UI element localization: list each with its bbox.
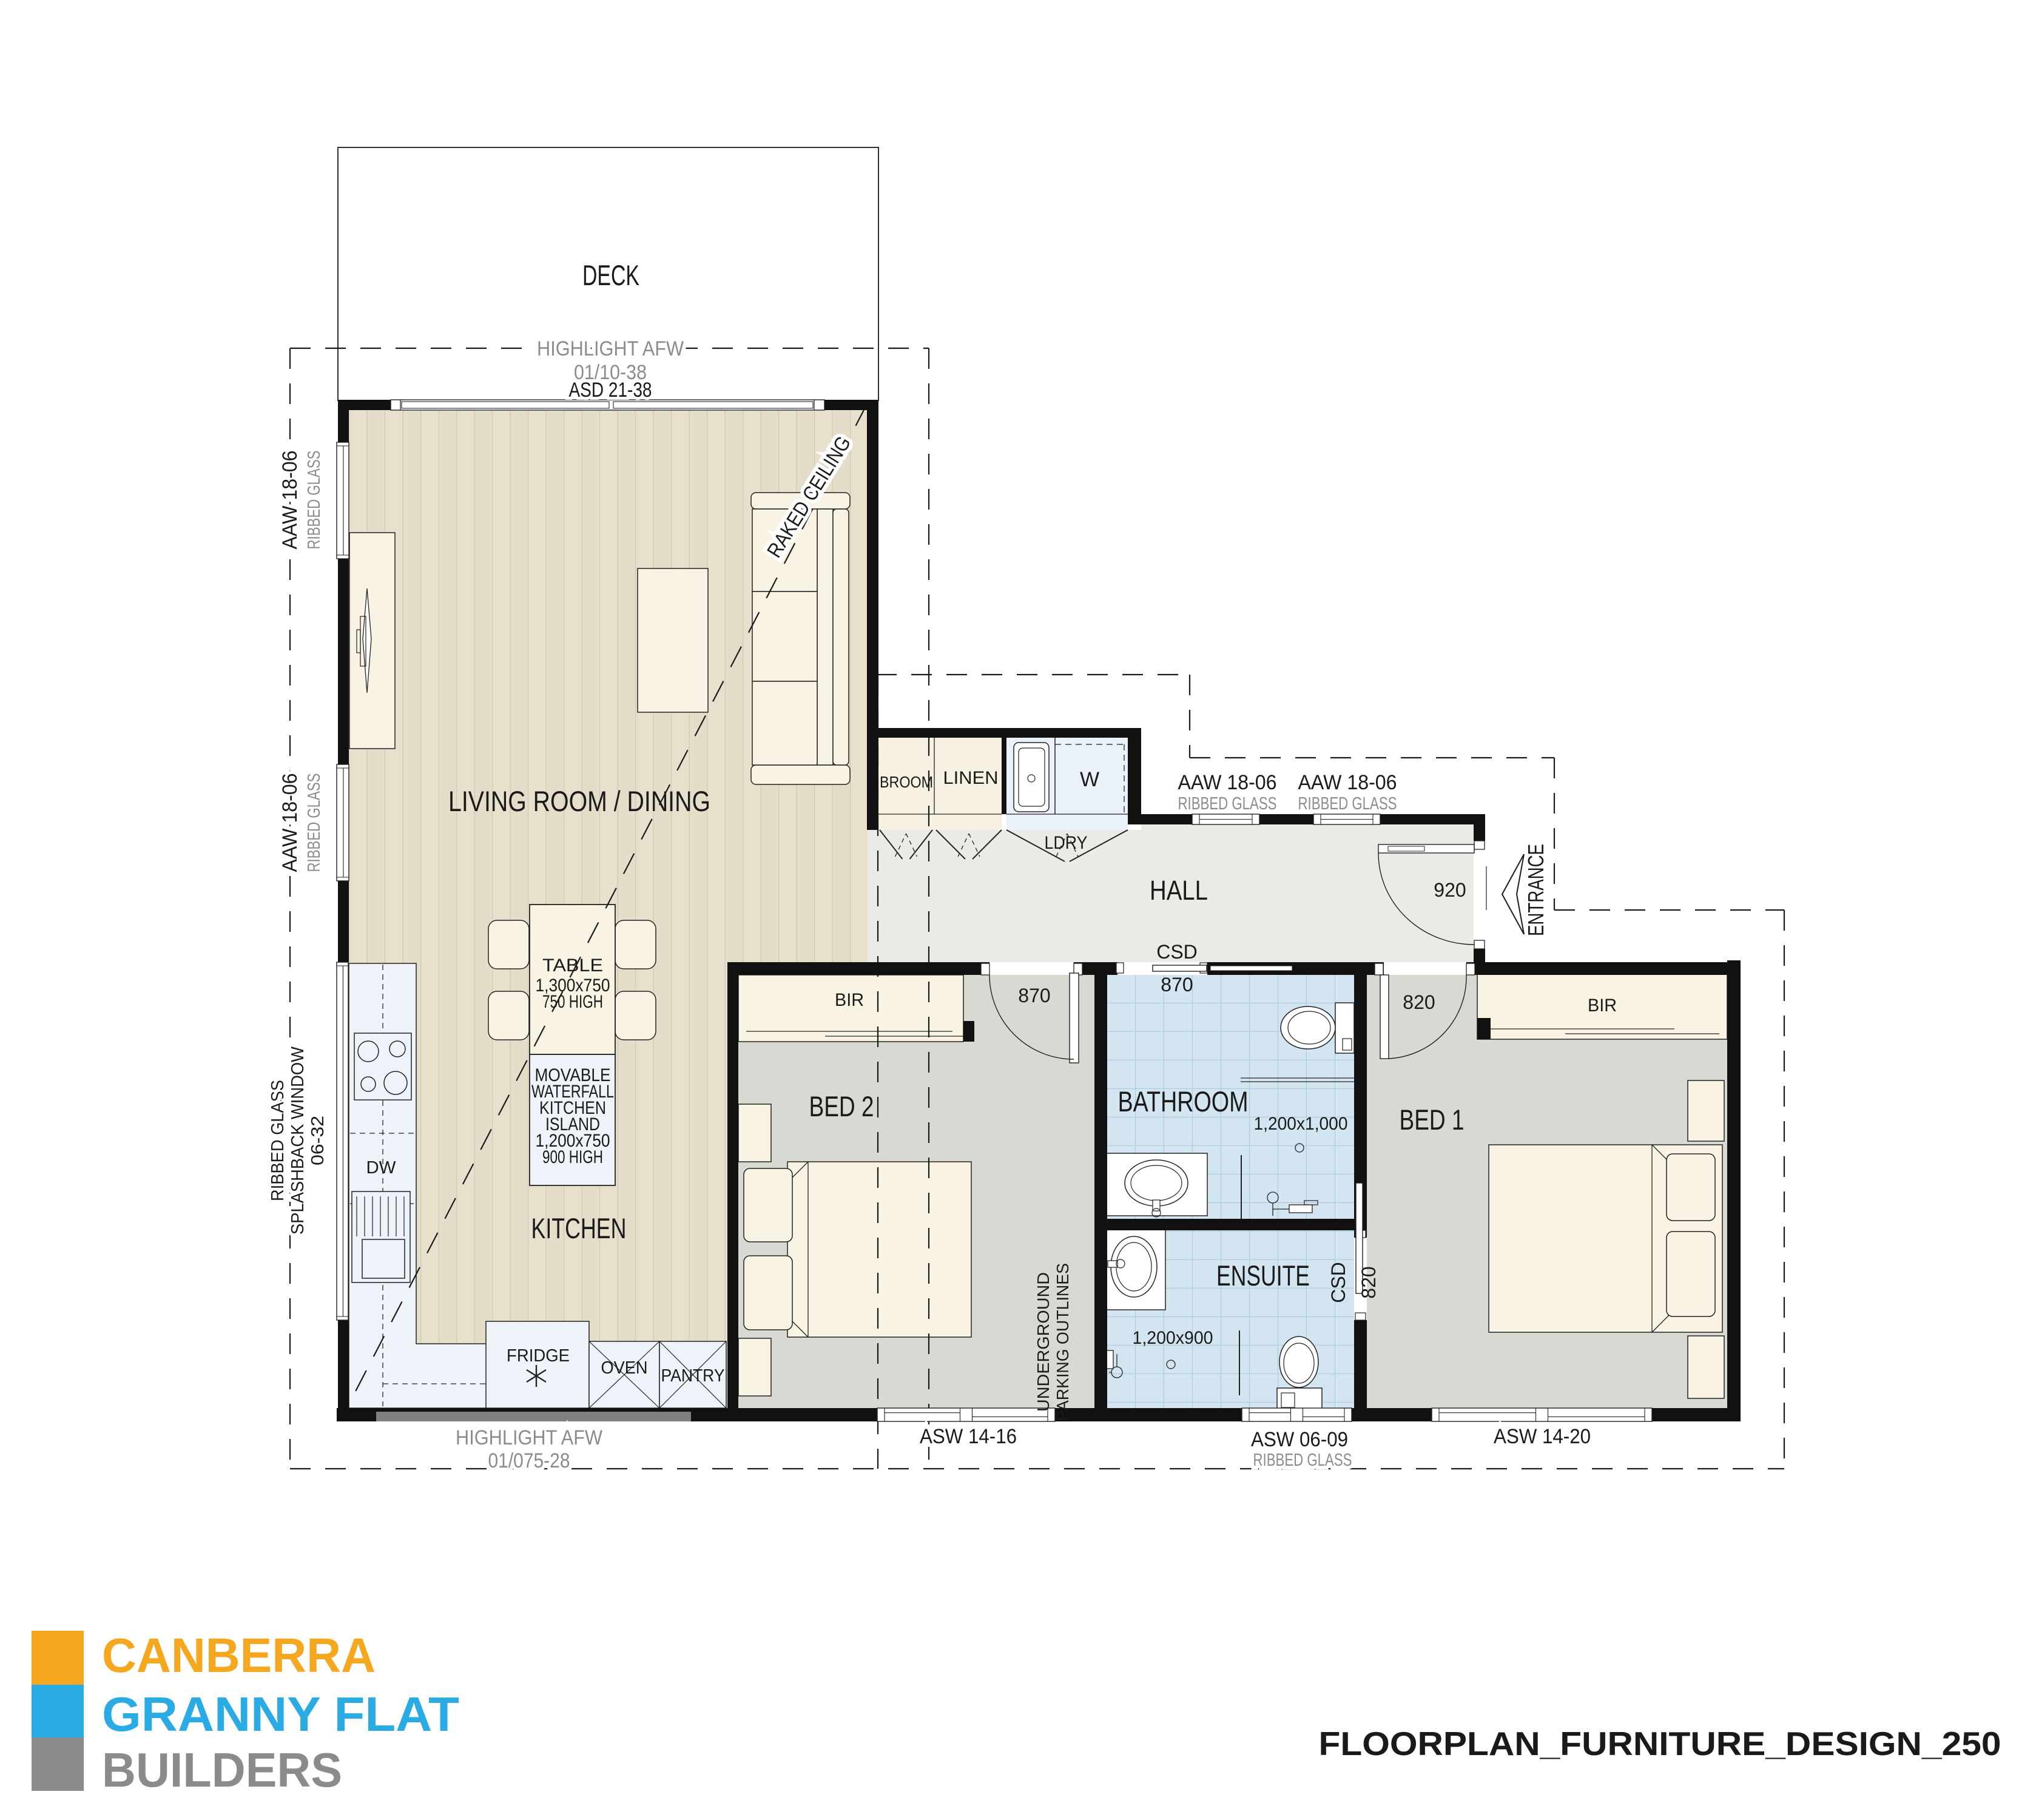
svg-text:GRANNY FLAT: GRANNY FLAT xyxy=(102,1687,459,1741)
svg-text:820: 820 xyxy=(1403,991,1435,1013)
svg-text:KITCHEN: KITCHEN xyxy=(531,1212,627,1244)
svg-text:HIGHLIGHT AFW: HIGHLIGHT AFW xyxy=(456,1426,602,1449)
svg-text:RIBBED GLASS: RIBBED GLASS xyxy=(305,451,324,550)
svg-text:LIVING ROOM / DINING: LIVING ROOM / DINING xyxy=(448,785,710,817)
svg-text:RIBBED GLASS: RIBBED GLASS xyxy=(1298,794,1397,814)
svg-text:PARKING OUTLINES: PARKING OUTLINES xyxy=(1053,1263,1072,1421)
svg-text:BATHROOM: BATHROOM xyxy=(1118,1085,1249,1117)
svg-text:HALL: HALL xyxy=(1150,875,1208,906)
svg-text:CSD: CSD xyxy=(1327,1262,1349,1303)
svg-text:AAW 18-06: AAW 18-06 xyxy=(278,451,302,550)
svg-text:DW: DW xyxy=(366,1158,397,1178)
svg-text:W: W xyxy=(1080,768,1099,791)
svg-text:ENTRANCE: ENTRANCE xyxy=(1523,844,1548,936)
svg-text:FLOORPLAN_FURNITURE_DESIGN_250: FLOORPLAN_FURNITURE_DESIGN_250 xyxy=(1319,1725,2001,1762)
svg-text:ASW 14-16: ASW 14-16 xyxy=(920,1425,1017,1448)
svg-text:FRIDGE: FRIDGE xyxy=(507,1346,570,1366)
svg-text:BIR: BIR xyxy=(835,990,864,1010)
svg-text:900 HIGH: 900 HIGH xyxy=(542,1147,603,1167)
svg-text:RIBBED GLASS: RIBBED GLASS xyxy=(268,1080,288,1201)
svg-text:920: 920 xyxy=(1434,879,1466,901)
svg-text:SPLASHBACK WINDOW: SPLASHBACK WINDOW xyxy=(288,1046,308,1235)
svg-text:1,200x900: 1,200x900 xyxy=(1133,1328,1213,1348)
svg-text:01/075-28: 01/075-28 xyxy=(488,1449,570,1472)
svg-text:CSD: CSD xyxy=(1156,941,1198,963)
svg-text:AAW 18-06: AAW 18-06 xyxy=(1178,771,1277,794)
svg-text:OVEN: OVEN xyxy=(601,1358,648,1378)
svg-text:BED 1: BED 1 xyxy=(1400,1104,1465,1136)
svg-text:ASW 14-20: ASW 14-20 xyxy=(1494,1425,1591,1448)
svg-text:1,200x1,000: 1,200x1,000 xyxy=(1254,1114,1348,1134)
svg-text:ASW 06-09: ASW 06-09 xyxy=(1251,1428,1348,1451)
svg-text:870: 870 xyxy=(1161,974,1193,996)
svg-text:CANBERRA: CANBERRA xyxy=(102,1628,376,1682)
svg-text:BIR: BIR xyxy=(1588,996,1617,1016)
svg-text:BROOM: BROOM xyxy=(880,773,933,791)
svg-text:870: 870 xyxy=(1018,985,1050,1006)
svg-text:HIGHLIGHT AFW: HIGHLIGHT AFW xyxy=(537,337,684,360)
svg-text:BUILDERS: BUILDERS xyxy=(102,1743,342,1797)
svg-text:820: 820 xyxy=(1358,1266,1380,1298)
svg-text:BED 2: BED 2 xyxy=(809,1090,874,1122)
svg-text:ENSUITE: ENSUITE xyxy=(1216,1259,1310,1292)
svg-text:RIBBED GLASS: RIBBED GLASS xyxy=(305,773,324,872)
svg-text:LINEN: LINEN xyxy=(943,768,999,788)
svg-text:AAW 18-06: AAW 18-06 xyxy=(278,773,302,872)
svg-text:AAW 18-06: AAW 18-06 xyxy=(1298,771,1397,794)
svg-text:750 HIGH: 750 HIGH xyxy=(542,992,603,1012)
svg-text:RIBBED GLASS: RIBBED GLASS xyxy=(1253,1451,1352,1470)
svg-text:RIBBED GLASS: RIBBED GLASS xyxy=(1178,794,1277,814)
svg-text:DECK: DECK xyxy=(582,259,639,291)
svg-text:LDRY: LDRY xyxy=(1045,833,1088,853)
svg-text:PANTRY: PANTRY xyxy=(661,1366,725,1386)
svg-text:06-32: 06-32 xyxy=(308,1116,328,1165)
svg-text:UNDERGROUND: UNDERGROUND xyxy=(1034,1272,1053,1412)
svg-text:ASD 21-38: ASD 21-38 xyxy=(569,379,652,402)
